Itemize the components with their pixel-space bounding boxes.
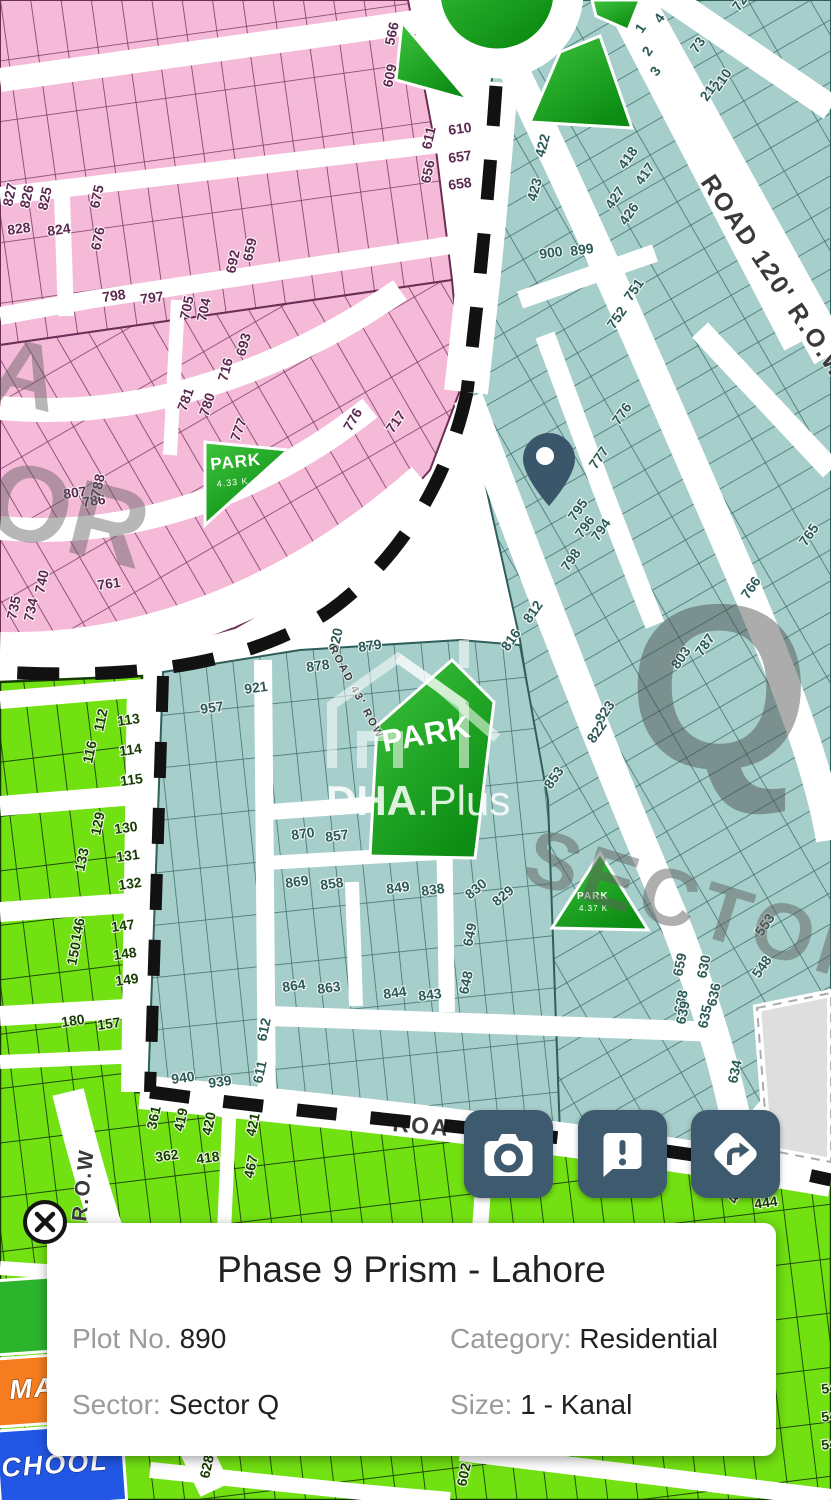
- field-value: 1 - Kanal: [520, 1389, 632, 1420]
- pl-label: 658: [447, 174, 473, 193]
- field-label: Category:: [450, 1323, 571, 1354]
- pl-label: 957: [199, 698, 225, 717]
- field-sector: Sector:Sector Q: [72, 1389, 450, 1421]
- pl-label: 824: [46, 220, 72, 239]
- feedback-button[interactable]: [578, 1110, 667, 1198]
- close-icon: [22, 1199, 68, 1245]
- brand-bold: DHA: [326, 777, 417, 824]
- pl-label: 546: [820, 1378, 831, 1397]
- field-value: Sector Q: [169, 1389, 279, 1420]
- pl-label: 157: [96, 1014, 122, 1033]
- pl-label: 657: [447, 147, 473, 166]
- pl-label: 548: [820, 1434, 831, 1453]
- pl-label: 797: [139, 288, 165, 307]
- pl-label: 844: [382, 983, 408, 1002]
- pl-label: 115: [119, 770, 144, 789]
- pl-label: 132: [117, 874, 143, 893]
- pl-label: 362: [154, 1146, 180, 1165]
- pl-label: 798: [101, 286, 127, 305]
- pl-label: 863: [316, 978, 342, 997]
- pl-label: 180: [60, 1011, 86, 1030]
- pl-label: 843: [417, 985, 443, 1004]
- field-plot-no: Plot No.890: [72, 1323, 450, 1355]
- feedback-icon: [578, 1110, 667, 1198]
- field-value: 890: [180, 1323, 227, 1354]
- pl-label: 849: [385, 878, 411, 897]
- card-fields: Plot No.890 Category:Residential Sector:…: [47, 1323, 776, 1421]
- card-title: Phase 9 Prism - Lahore: [47, 1249, 776, 1291]
- pl-label: 939: [207, 1072, 233, 1091]
- pl-label: 610: [447, 119, 473, 138]
- app-screen: 5666096106116576566588278268258288246756…: [0, 0, 831, 1500]
- pl-label: 547: [820, 1406, 831, 1425]
- pl-label: 940: [170, 1068, 196, 1087]
- pl-label: 114: [118, 740, 143, 759]
- pl-label: 879: [357, 636, 383, 655]
- pl-label: 878: [305, 656, 331, 675]
- pl-label: 149: [114, 970, 140, 989]
- pl-label: 828: [6, 219, 32, 238]
- sector-q-watermark: Q: [628, 555, 811, 818]
- pl-label: 870: [290, 824, 316, 843]
- brand-rest: .Plus: [417, 777, 510, 824]
- pl-label: 900: [538, 243, 564, 262]
- pl-label: 131: [115, 846, 141, 865]
- pl-label: 869: [284, 872, 310, 891]
- field-category: Category:Residential: [450, 1323, 751, 1355]
- camera-button[interactable]: [464, 1110, 553, 1198]
- pin-hole: [536, 447, 554, 465]
- pl-label: 148: [112, 944, 138, 963]
- field-label: Size:: [450, 1389, 512, 1420]
- pl-label: 864: [281, 976, 307, 995]
- field-label: Plot No.: [72, 1323, 172, 1354]
- field-label: Sector:: [72, 1389, 161, 1420]
- pl-label: 113: [116, 710, 141, 729]
- pl-label: 858: [319, 874, 345, 893]
- field-size: Size:1 - Kanal: [450, 1389, 751, 1421]
- directions-icon: [691, 1110, 780, 1198]
- pl-label: 857: [324, 826, 350, 845]
- pl-label: 838: [420, 880, 446, 899]
- close-card-button[interactable]: [22, 1199, 68, 1245]
- dha-plus-wordmark: DHA.Plus: [326, 777, 510, 824]
- camera-icon: [464, 1110, 553, 1198]
- field-value: Residential: [579, 1323, 718, 1354]
- plot-info-card: Phase 9 Prism - Lahore Plot No.890 Categ…: [47, 1223, 776, 1456]
- pl-label: 130: [113, 818, 139, 837]
- pl-label: 921: [243, 678, 269, 697]
- pl-label: 899: [569, 240, 595, 259]
- pl-label: 418: [195, 1148, 221, 1167]
- directions-button[interactable]: [691, 1110, 780, 1198]
- pl-label: 147: [110, 916, 136, 935]
